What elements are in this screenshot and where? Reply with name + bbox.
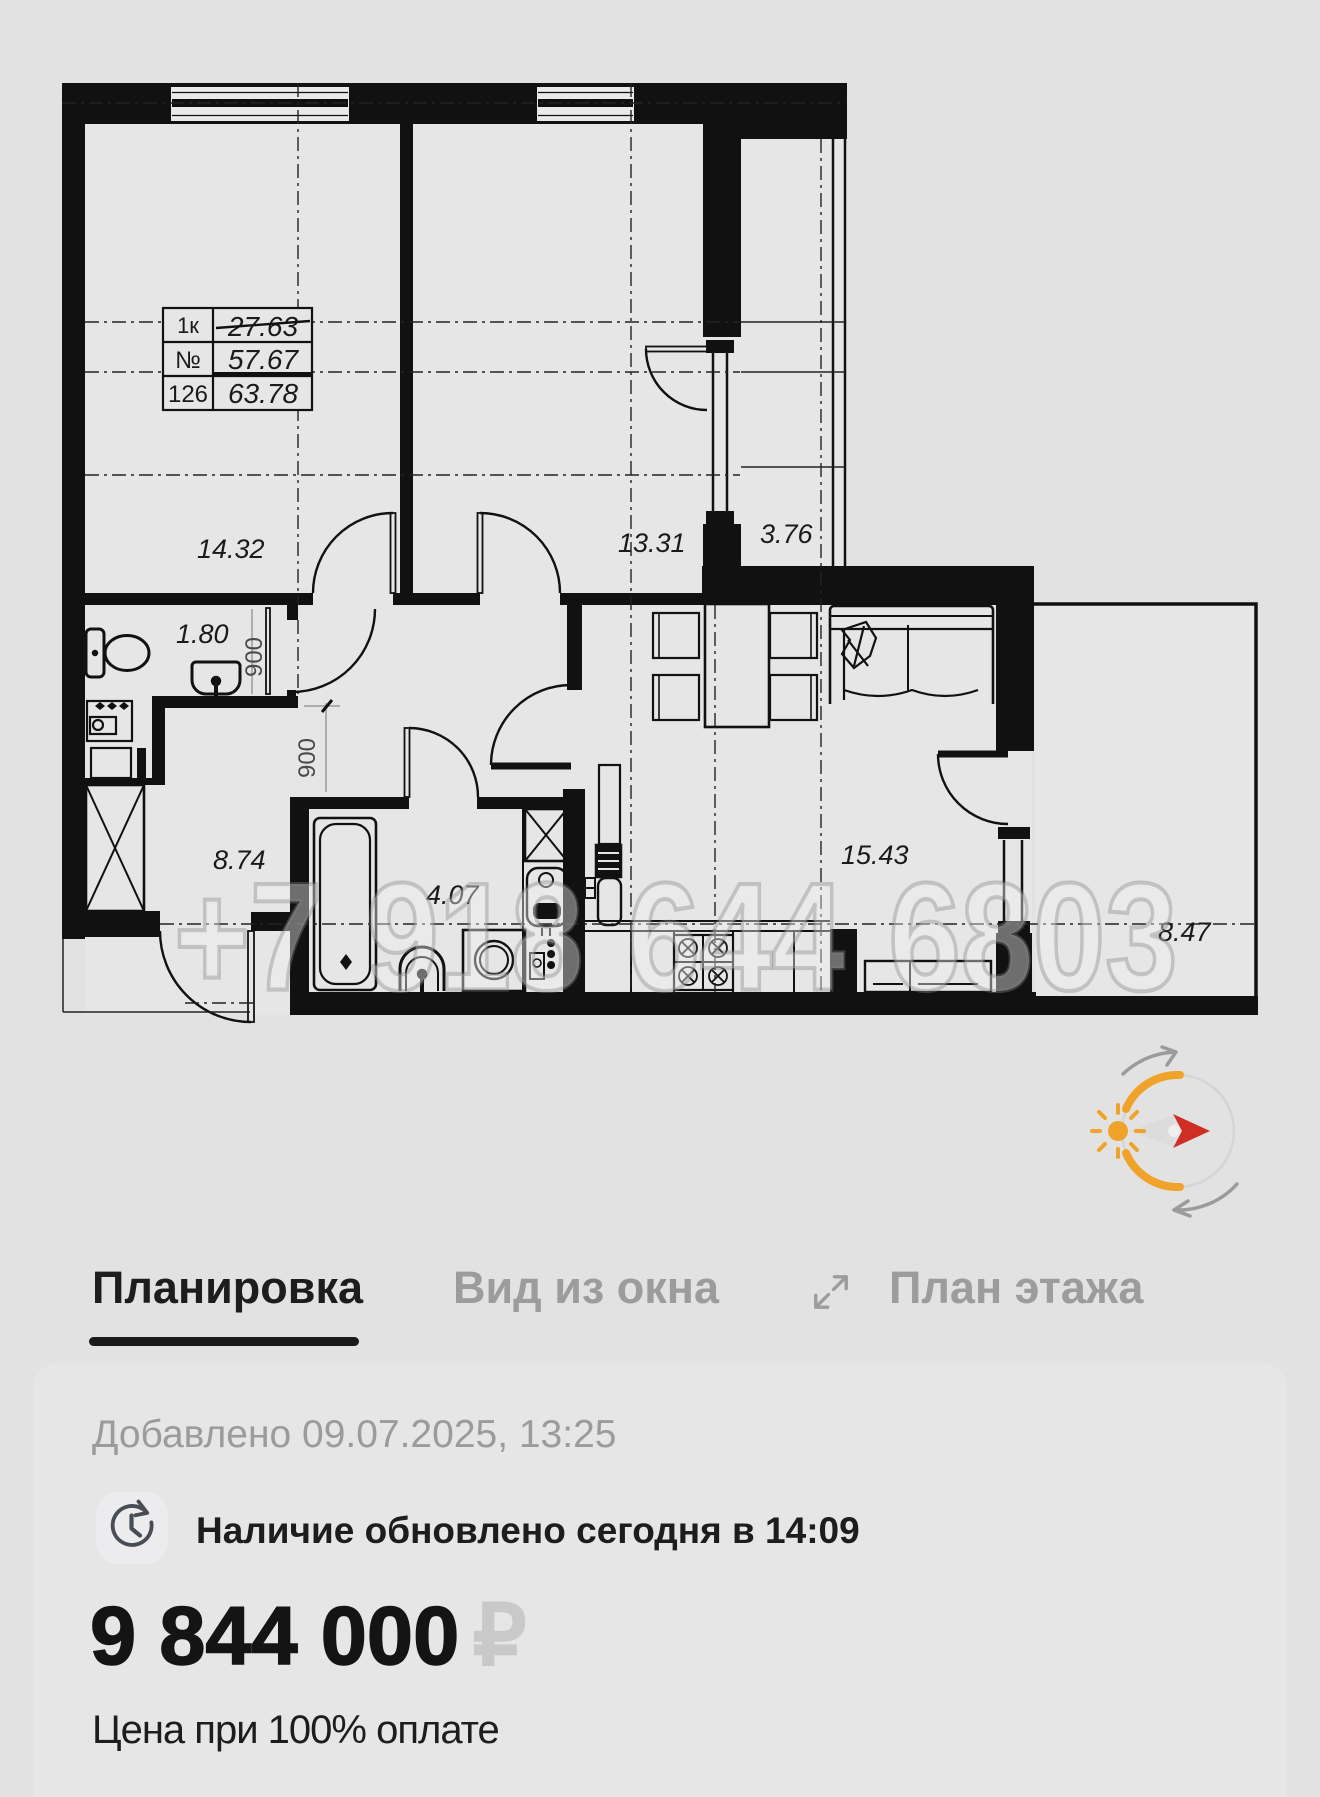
svg-text:57.67: 57.67 (228, 344, 299, 375)
svg-text:126: 126 (168, 381, 208, 408)
svg-text:900: 900 (294, 738, 321, 778)
svg-text:63.78: 63.78 (228, 378, 298, 409)
svg-text:3.76: 3.76 (760, 519, 814, 549)
svg-text:1.80: 1.80 (176, 619, 229, 649)
svg-text:14.32: 14.32 (197, 534, 265, 564)
svg-text:900: 900 (241, 637, 268, 677)
svg-text:№: № (175, 347, 201, 374)
svg-text:13.31: 13.31 (618, 528, 686, 558)
svg-text:1к: 1к (177, 313, 199, 338)
